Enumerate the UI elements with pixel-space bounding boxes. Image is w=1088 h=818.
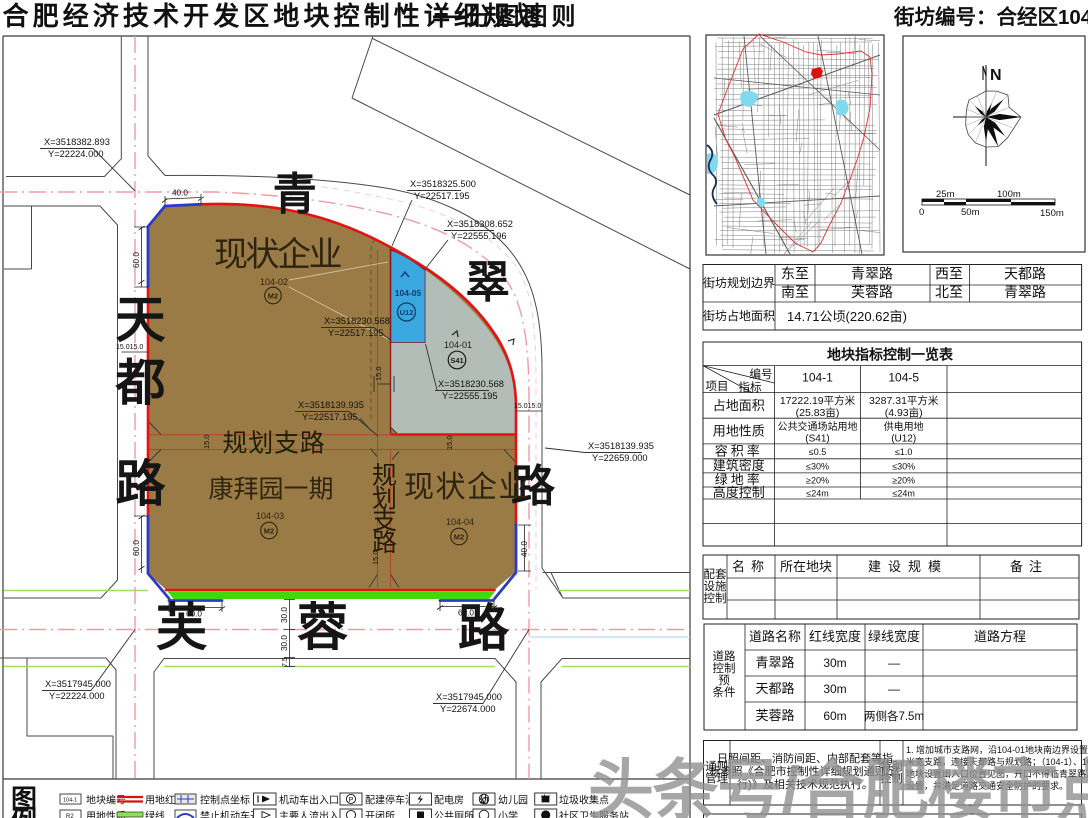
svg-text:指标: 指标 [739, 380, 762, 394]
svg-text:100m: 100m [997, 189, 1021, 200]
svg-text:15.015.0: 15.015.0 [116, 344, 143, 351]
svg-text:绿线: 绿线 [145, 810, 165, 818]
svg-text:60.0: 60.0 [186, 610, 202, 619]
svg-text:104-5: 104-5 [888, 371, 919, 385]
svg-text:U12: U12 [400, 308, 414, 317]
svg-text:—: — [888, 682, 900, 696]
svg-text:15.0: 15.0 [445, 435, 454, 450]
svg-text:104-05: 104-05 [395, 288, 422, 298]
svg-text:幼儿园: 幼儿园 [498, 794, 528, 807]
svg-text:60m: 60m [823, 709, 846, 723]
svg-text:翠: 翠 [466, 258, 510, 307]
svg-text:开闭所: 开闭所 [365, 810, 395, 818]
svg-text:40.0: 40.0 [520, 541, 529, 557]
svg-text:X=3518230.568: X=3518230.568 [438, 379, 504, 389]
svg-text:30.0: 30.0 [280, 635, 289, 651]
svg-text:≤1.0: ≤1.0 [895, 447, 912, 457]
svg-text:幼: 幼 [479, 794, 488, 805]
svg-text:北至: 北至 [935, 284, 963, 300]
svg-text:地块编号: 地块编号 [86, 794, 126, 807]
svg-text:≤0.5: ≤0.5 [809, 447, 826, 457]
svg-text:30m: 30m [823, 682, 846, 696]
svg-text:Y=22659.000: Y=22659.000 [592, 453, 648, 463]
svg-text:14.71公顷(220.62亩): 14.71公顷(220.62亩) [787, 309, 907, 324]
svg-text:M2: M2 [264, 527, 274, 536]
svg-text:Y=22517.195: Y=22517.195 [414, 191, 470, 201]
svg-text:容积率: 容积率 [715, 444, 763, 459]
svg-text:(4.93亩): (4.93亩) [885, 406, 923, 419]
svg-text:≤24m: ≤24m [806, 489, 828, 499]
svg-text:建设规模: 建设规模 [868, 559, 948, 574]
svg-text:西至: 西至 [935, 266, 963, 282]
svg-text:17222.19平方米: 17222.19平方米 [780, 394, 856, 407]
svg-text:X=3518382.893: X=3518382.893 [44, 137, 110, 147]
svg-text:条件: 条件 [713, 685, 736, 699]
svg-text:用地性质: 用地性质 [713, 424, 765, 439]
svg-text:Y=22674.000: Y=22674.000 [440, 704, 496, 714]
svg-text:S41: S41 [450, 356, 463, 365]
svg-text:道路: 道路 [713, 649, 736, 663]
svg-text:X=3518139.935: X=3518139.935 [298, 400, 364, 410]
svg-text:备注: 备注 [1010, 559, 1048, 574]
svg-text:≥20%: ≥20% [892, 475, 915, 485]
svg-text:占地面积: 占地面积 [713, 398, 765, 413]
svg-text:配套: 配套 [704, 568, 727, 581]
svg-text:项目: 项目 [706, 380, 729, 393]
svg-text:设施: 设施 [704, 580, 727, 593]
svg-text:青翠路: 青翠路 [1004, 284, 1046, 300]
svg-text:名称: 名称 [732, 559, 770, 574]
svg-text:60.0: 60.0 [458, 609, 474, 618]
svg-text:R2: R2 [66, 814, 74, 818]
svg-text:30.0: 30.0 [280, 607, 289, 623]
svg-text:Y=22517.195: Y=22517.195 [328, 328, 384, 338]
svg-text:104-1: 104-1 [802, 371, 833, 385]
svg-text:天都路: 天都路 [1004, 266, 1046, 282]
svg-text:15.0: 15.0 [371, 550, 380, 565]
svg-text:(U12): (U12) [891, 434, 916, 445]
svg-text:两侧各7.5m: 两侧各7.5m [864, 709, 924, 723]
svg-text:N: N [990, 67, 1002, 84]
svg-text:15.0: 15.0 [374, 366, 383, 381]
svg-text:控制点坐标: 控制点坐标 [200, 794, 250, 807]
svg-text:≤24m: ≤24m [892, 489, 914, 499]
svg-text:—: — [888, 656, 900, 670]
svg-text:150m: 150m [1040, 208, 1064, 219]
svg-text:街坊占地面积: 街坊占地面积 [703, 308, 775, 323]
svg-text:头条号/合肥楼市点评: 头条号/合肥楼市点评 [588, 753, 1088, 818]
svg-text:机动车出入口: 机动车出入口 [279, 794, 339, 807]
svg-text:天都路: 天都路 [755, 681, 794, 696]
svg-text:高度控制: 高度控制 [713, 485, 765, 500]
svg-text:60.0: 60.0 [132, 540, 141, 556]
svg-text:主要人流出入口: 主要人流出入口 [279, 810, 349, 818]
svg-text:芙蓉路: 芙蓉路 [851, 284, 893, 300]
svg-text:(25.83亩): (25.83亩) [796, 406, 840, 419]
svg-text:现状企业: 现状企业 [214, 236, 341, 274]
svg-text:蓉: 蓉 [297, 599, 348, 656]
svg-text:配电房: 配电房 [434, 794, 464, 807]
svg-text:15.015.0: 15.015.0 [514, 403, 541, 410]
svg-text:Y=22517.195: Y=22517.195 [302, 412, 358, 422]
svg-text:104-03: 104-03 [256, 511, 284, 521]
svg-text:康拜园一期: 康拜园一期 [208, 476, 333, 504]
svg-text:X=3518325.500: X=3518325.500 [410, 179, 476, 189]
svg-text:天: 天 [116, 292, 166, 348]
svg-text:都: 都 [115, 355, 166, 411]
svg-text:南至: 南至 [781, 284, 809, 300]
svg-text:≤30%: ≤30% [892, 461, 915, 471]
svg-text:芙蓉路: 芙蓉路 [755, 708, 794, 723]
svg-text:Y=22555.195: Y=22555.195 [442, 391, 498, 401]
svg-text:50m: 50m [961, 207, 980, 218]
svg-text:7.5: 7.5 [282, 657, 289, 667]
svg-text:控制: 控制 [713, 661, 736, 675]
svg-text:青: 青 [273, 170, 317, 219]
svg-text:例: 例 [11, 806, 37, 818]
svg-text:道路名称: 道路名称 [749, 629, 801, 644]
svg-text:40.0: 40.0 [172, 189, 188, 198]
svg-text:分图图则: 分图图则 [468, 4, 580, 31]
svg-text:60.0: 60.0 [132, 252, 141, 268]
svg-text:规划支路: 规划支路 [222, 430, 325, 458]
svg-text:街坊编号：合经区104街坊: 街坊编号：合经区104街坊 [893, 5, 1088, 29]
svg-text:X=3517945.000: X=3517945.000 [45, 679, 111, 689]
svg-text:≥20%: ≥20% [806, 475, 829, 485]
svg-text:25m: 25m [936, 189, 955, 200]
svg-text:公共交通场站用地: 公共交通场站用地 [778, 420, 858, 433]
svg-text:绿线宽度: 绿线宽度 [868, 629, 920, 644]
svg-text:公共厕所: 公共厕所 [434, 811, 474, 818]
svg-text:30m: 30m [823, 656, 846, 670]
svg-text:≤30%: ≤30% [806, 461, 829, 471]
svg-text:地块指标控制一览表: 地块指标控制一览表 [827, 347, 954, 363]
svg-text:0: 0 [919, 207, 924, 218]
svg-text:青翠路: 青翠路 [851, 266, 893, 282]
svg-text:建筑密度: 建筑密度 [713, 458, 765, 473]
svg-text:(S41): (S41) [805, 434, 829, 445]
svg-text:道路方程: 道路方程 [974, 629, 1026, 644]
svg-text:M2: M2 [268, 292, 278, 301]
svg-text:P: P [349, 797, 354, 804]
svg-text:现状企业: 现状企业 [404, 471, 530, 504]
svg-text:路: 路 [116, 456, 167, 512]
svg-text:104-1: 104-1 [63, 798, 77, 804]
svg-text:104-04: 104-04 [446, 517, 474, 527]
svg-text:3287.31平方米: 3287.31平方米 [869, 394, 939, 407]
svg-text:X=3517945.000: X=3517945.000 [436, 692, 502, 702]
svg-text:预: 预 [718, 674, 730, 687]
svg-text:东至: 东至 [781, 266, 809, 282]
svg-text:X=3518308.652: X=3518308.652 [447, 219, 513, 229]
svg-text:104-01: 104-01 [444, 340, 472, 350]
svg-text:供电用地: 供电用地 [884, 420, 924, 433]
svg-text:Y=22224.000: Y=22224.000 [49, 691, 105, 701]
svg-text:控制: 控制 [704, 591, 727, 605]
svg-text:M2: M2 [454, 533, 464, 542]
svg-text:15.0: 15.0 [202, 434, 211, 449]
svg-text:X=3518139.935: X=3518139.935 [588, 441, 654, 451]
svg-text:青翠路: 青翠路 [755, 655, 794, 670]
svg-text:红线宽度: 红线宽度 [809, 629, 861, 644]
svg-text:小学: 小学 [498, 810, 518, 818]
svg-text:编号: 编号 [750, 367, 773, 381]
svg-text:X=3518230.568: X=3518230.568 [324, 316, 390, 326]
svg-text:104-02: 104-02 [260, 277, 288, 287]
svg-text:Y=22555.196: Y=22555.196 [451, 231, 507, 241]
svg-text:街坊规划边界: 街坊规划边界 [703, 275, 775, 290]
svg-text:所在地块: 所在地块 [780, 559, 832, 574]
